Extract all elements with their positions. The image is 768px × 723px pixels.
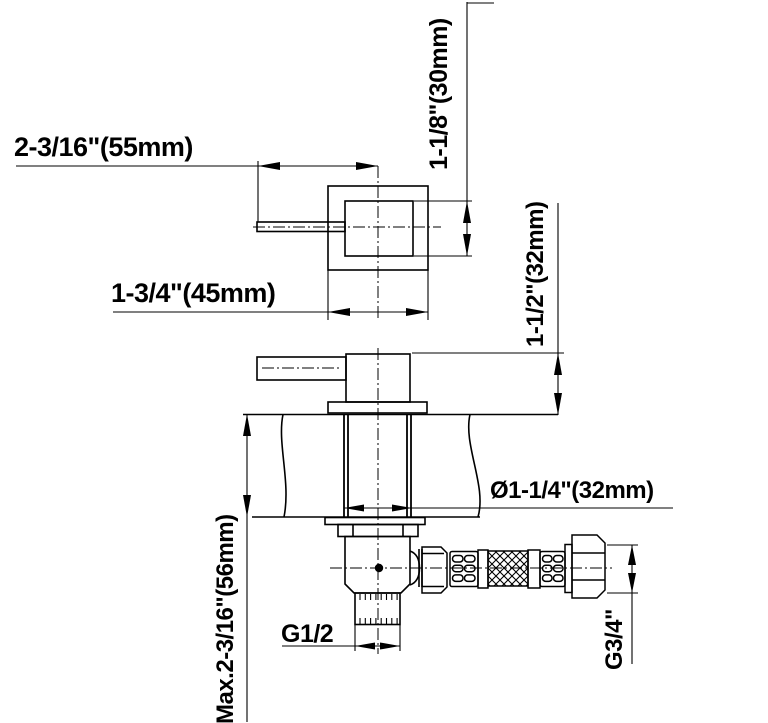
dim-label-body-height: 1-1/8"(30mm): [427, 18, 452, 170]
hose-assembly: [422, 535, 605, 598]
hose-nut-g34: [572, 535, 605, 598]
dim-label-max-wall-thickness: Max.2-3/16"(56mm): [214, 514, 238, 723]
dim-label-hole-diameter: Ø1-1/4"(32mm): [490, 479, 654, 503]
hose-sleeve-2: [540, 552, 565, 587]
dimension-lines: [16, 2, 673, 722]
hose-band-1: [478, 550, 488, 588]
back-flange-plate: [325, 518, 425, 525]
hose-nut-valve-side: [422, 547, 447, 593]
plan-inner-body: [345, 201, 413, 256]
g12-thread-ticks: [360, 594, 397, 624]
dim-label-body-width: 1-3/4"(45mm): [111, 280, 275, 307]
hose-band-2: [528, 550, 540, 588]
dim-label-outlet-thread: G1/2: [281, 622, 333, 647]
plan-view: [257, 186, 428, 270]
technical-drawing-canvas: 2-3/16"(55mm) 1-3/4"(45mm) 1-1/8"(30mm) …: [0, 0, 768, 723]
wall-break-right: [469, 415, 480, 518]
line-work: [0, 0, 768, 723]
wall-break-left: [281, 415, 286, 518]
hose-sleeve-1: [450, 552, 478, 587]
dim-label-hose-thread: G3/4": [603, 609, 627, 670]
dim-label-body-depth: 1-1/2"(32mm): [524, 202, 548, 347]
dim-label-handle-length: 2-3/16"(55mm): [14, 134, 193, 161]
dimension-arrows: [243, 162, 636, 650]
